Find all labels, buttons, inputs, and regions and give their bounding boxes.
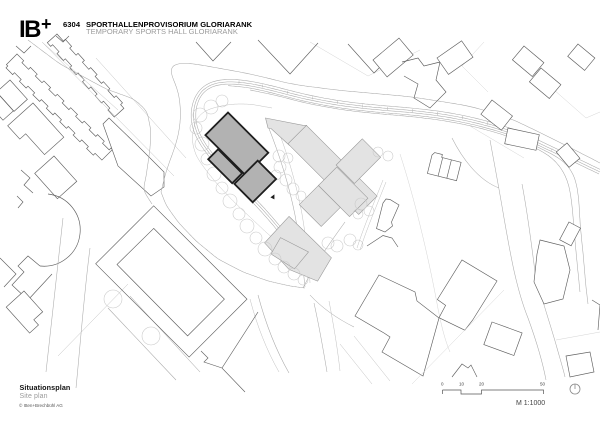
svg-text:20: 20 (479, 382, 485, 387)
svg-text:50: 50 (540, 382, 546, 387)
svg-text:10: 10 (459, 382, 465, 387)
svg-text:0: 0 (441, 382, 444, 387)
